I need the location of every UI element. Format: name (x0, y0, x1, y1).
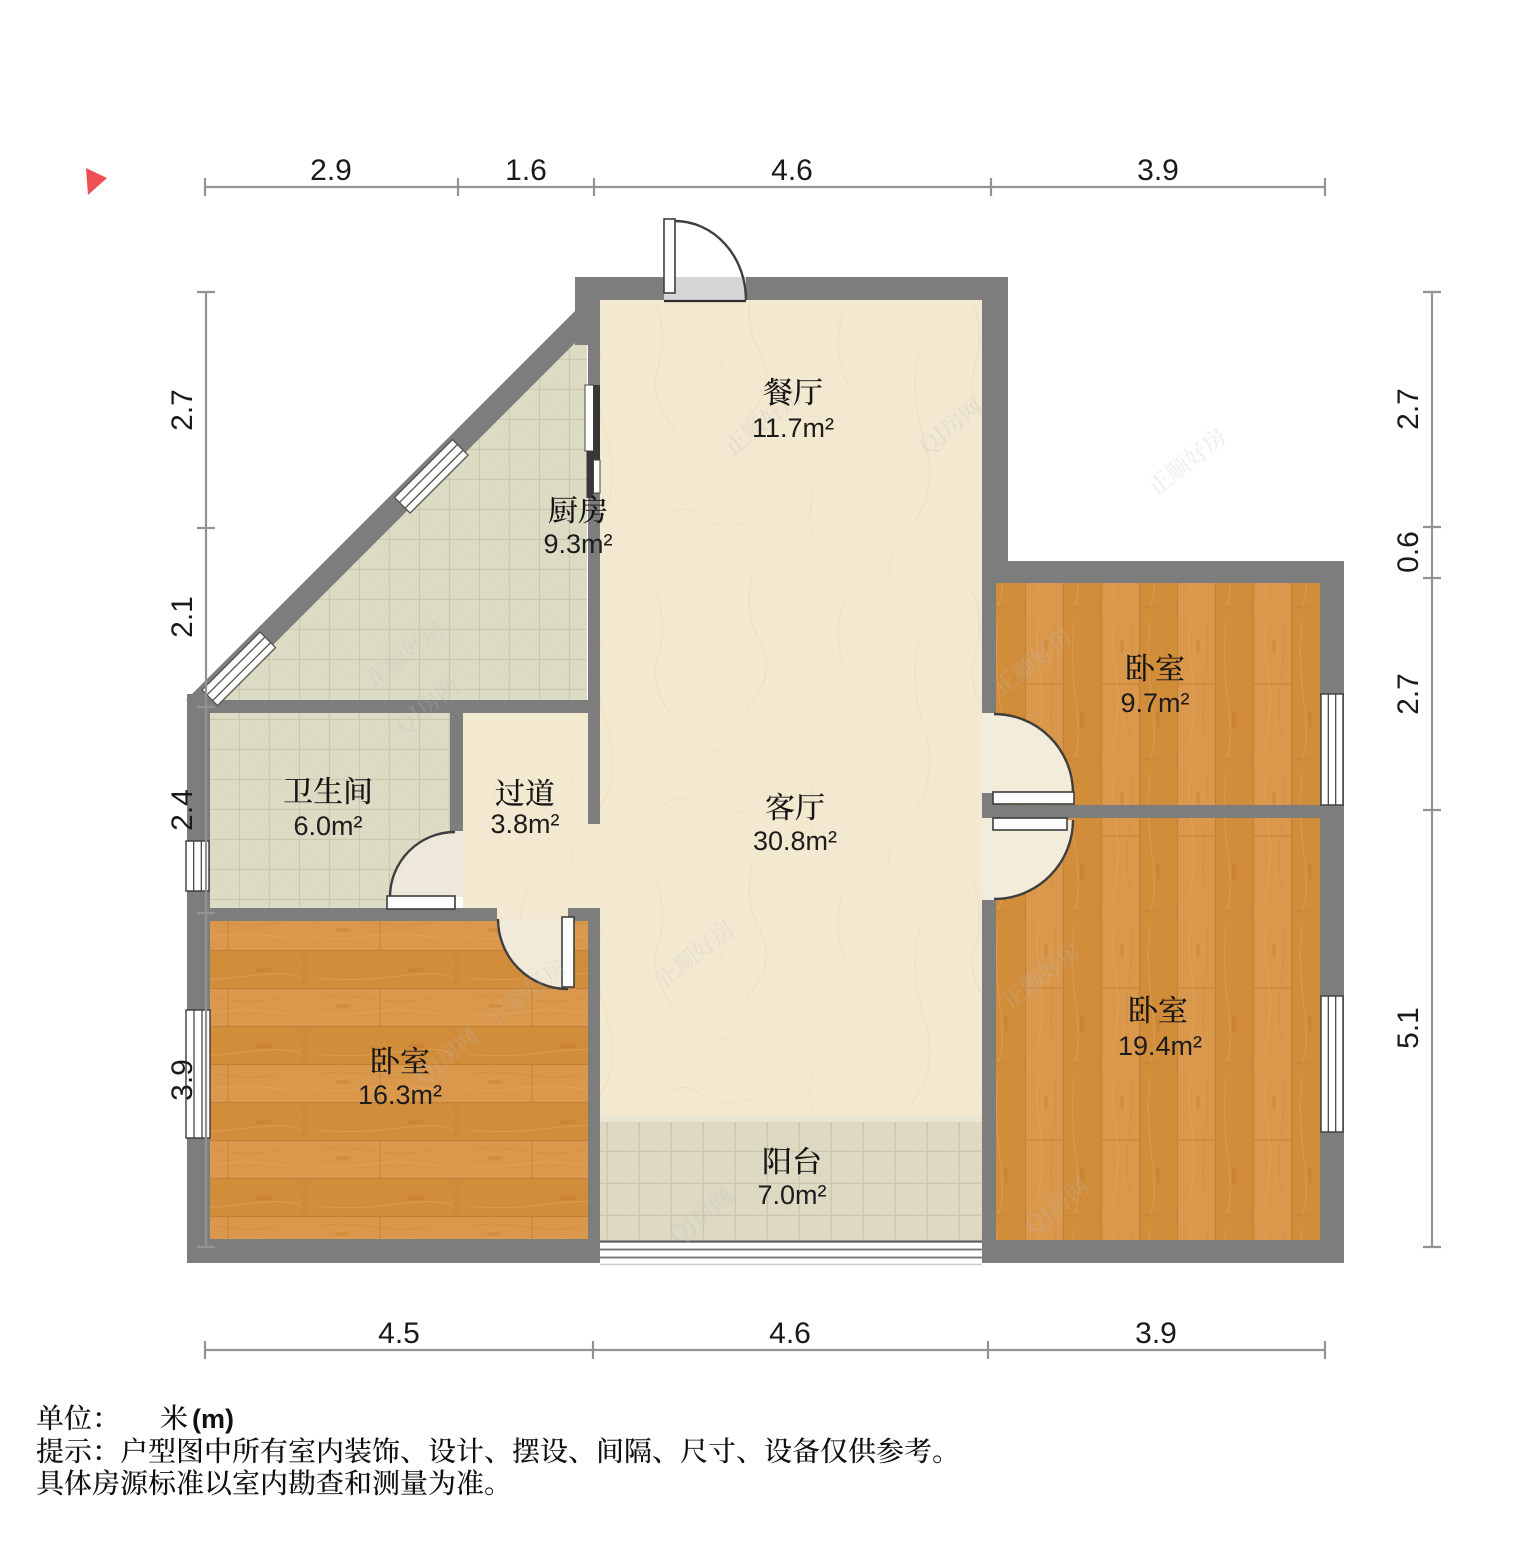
svg-text:4.5: 4.5 (378, 1317, 420, 1350)
svg-text:6.0m²: 6.0m² (293, 811, 362, 841)
svg-text:4.6: 4.6 (769, 1317, 811, 1350)
svg-text:2.7: 2.7 (166, 389, 199, 431)
svg-text:30.8m²: 30.8m² (753, 826, 837, 856)
svg-text:2.9: 2.9 (310, 154, 352, 187)
svg-text:5.1: 5.1 (1392, 1007, 1425, 1049)
svg-text:7.0m²: 7.0m² (757, 1180, 826, 1210)
svg-text:9.7m²: 9.7m² (1120, 688, 1189, 718)
svg-text:19.4m²: 19.4m² (1118, 1031, 1202, 1061)
svg-text:9.3m²: 9.3m² (543, 529, 612, 559)
svg-text:16.3m²: 16.3m² (358, 1080, 442, 1110)
svg-text:3.9: 3.9 (166, 1059, 199, 1101)
svg-text:2.7: 2.7 (1392, 388, 1425, 430)
svg-text:2.4: 2.4 (166, 789, 199, 831)
svg-text:11.7m²: 11.7m² (752, 413, 834, 443)
svg-text:2.1: 2.1 (166, 596, 199, 638)
svg-text:(m): (m) (192, 1404, 234, 1434)
svg-text:3.9: 3.9 (1135, 1317, 1177, 1350)
svg-text:3.8m²: 3.8m² (490, 809, 559, 839)
svg-text:4.6: 4.6 (771, 154, 813, 187)
svg-text:3.9: 3.9 (1137, 154, 1179, 187)
svg-text:1.6: 1.6 (505, 154, 547, 187)
svg-text:0.6: 0.6 (1392, 531, 1425, 573)
svg-text:2.7: 2.7 (1392, 673, 1425, 715)
